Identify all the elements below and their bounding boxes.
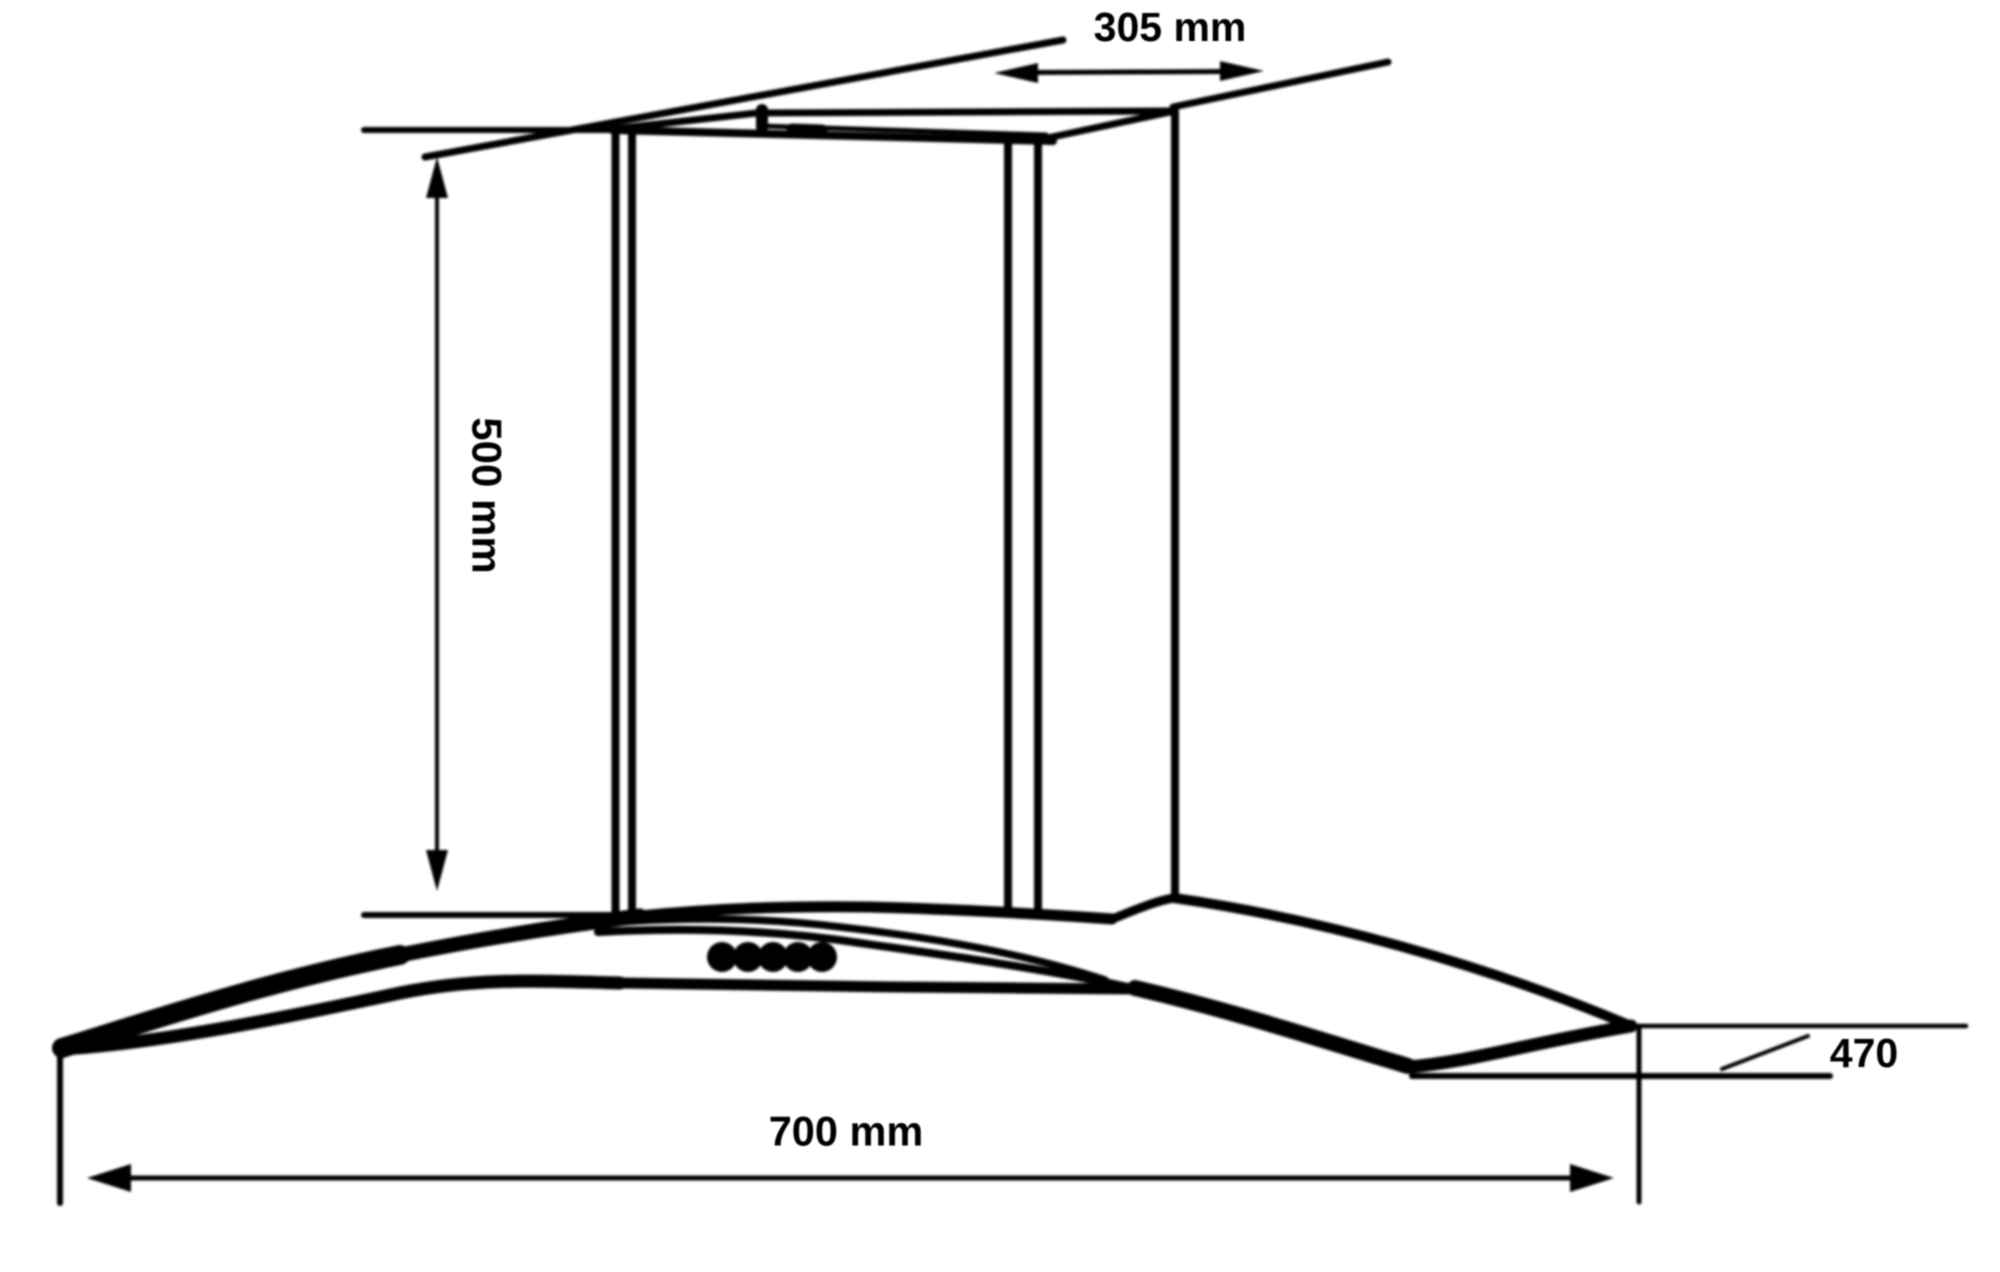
svg-text:500 mm: 500 mm bbox=[464, 417, 511, 573]
svg-text:305 mm: 305 mm bbox=[1094, 4, 1247, 50]
svg-text:700 mm: 700 mm bbox=[769, 1108, 924, 1155]
svg-text:470: 470 bbox=[1830, 1030, 1898, 1076]
